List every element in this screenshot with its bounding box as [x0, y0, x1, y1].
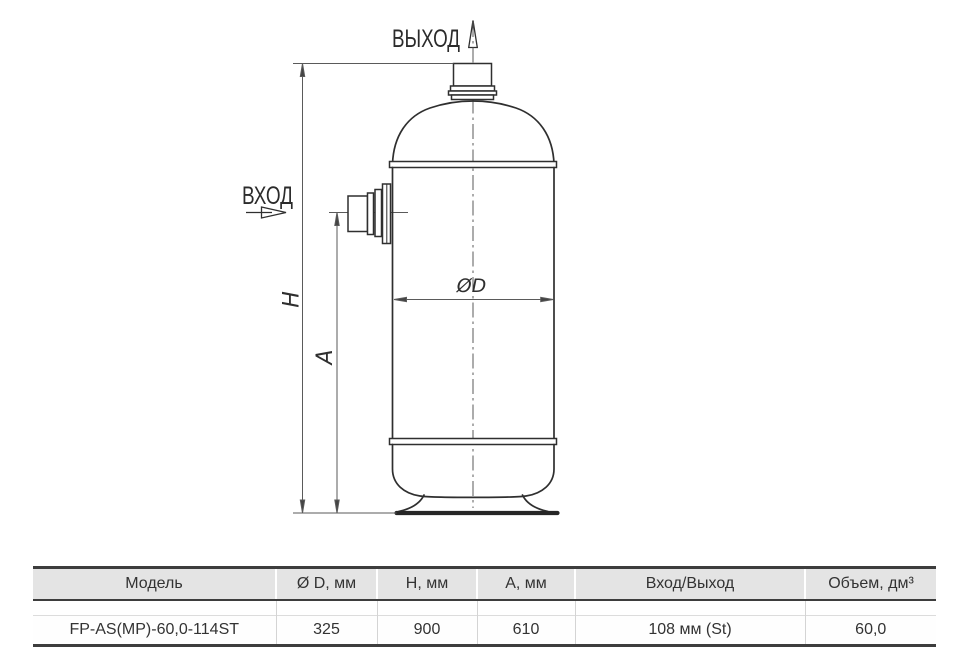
spacer-cell: [805, 600, 936, 616]
spacer-cell: [33, 600, 276, 616]
cell-height: 900: [377, 616, 477, 646]
skirt-right: [523, 495, 548, 512]
spec-data-row: FP-AS(MP)-60,0-114ST 325 900 610 108 мм …: [33, 616, 936, 646]
dim-a-arrow-bottom: [335, 500, 339, 513]
inlet-nozzle: [348, 184, 391, 244]
inlet-pipe: [348, 196, 368, 232]
col-header-height: H, мм: [377, 568, 477, 601]
col-header-diameter: Ø D, мм: [276, 568, 377, 601]
dim-d-label: ØD: [456, 275, 487, 297]
spec-table-container: Модель Ø D, мм H, мм A, мм Вход/Выход Об…: [33, 566, 936, 647]
inlet-label: ВХОД: [242, 182, 293, 210]
top-weld-band: [390, 162, 557, 168]
spacer-cell: [276, 600, 377, 616]
col-header-a: A, мм: [477, 568, 575, 601]
cell-inlet-outlet: 108 мм (St): [575, 616, 805, 646]
spacer-cell: [377, 600, 477, 616]
spacer-cell: [575, 600, 805, 616]
spacer-cell: [477, 600, 575, 616]
inlet-ring-1: [368, 193, 374, 235]
bottom-weld-band: [390, 439, 557, 445]
dim-h-label: H: [280, 291, 305, 308]
outlet-ring-2: [452, 95, 494, 100]
dim-diameter: [394, 297, 553, 301]
col-header-inlet-outlet: Вход/Выход: [575, 568, 805, 601]
cell-volume: 60,0: [805, 616, 936, 646]
technical-drawing: ВЫХОД ВХОД H A ØD: [0, 0, 969, 560]
spec-spacer-row: [33, 600, 936, 616]
dim-a-label: A: [313, 349, 338, 366]
dim-a-arrow-top: [335, 213, 339, 226]
outlet-nozzle: [449, 64, 497, 100]
dim-h-arrow-bottom: [300, 500, 304, 513]
dim-d-arrow-right: [541, 297, 554, 301]
col-header-model: Модель: [33, 568, 276, 601]
inlet-ring-2: [375, 190, 382, 237]
page: ВЫХОД ВХОД H A ØD Модель Ø D, мм H, мм A…: [0, 0, 969, 664]
skirt-left: [399, 495, 424, 512]
dim-height: [293, 64, 454, 514]
col-header-volume: Объем, дм³: [805, 568, 936, 601]
cell-model: FP-AS(MP)-60,0-114ST: [33, 616, 276, 646]
outlet-label: ВЫХОД: [392, 25, 460, 53]
spec-table: Модель Ø D, мм H, мм A, мм Вход/Выход Об…: [33, 566, 936, 647]
dim-h-arrow-top: [300, 64, 304, 77]
cell-diameter: 325: [276, 616, 377, 646]
dim-d-arrow-left: [394, 297, 407, 301]
outlet-pipe: [454, 64, 492, 87]
spec-header-row: Модель Ø D, мм H, мм A, мм Вход/Выход Об…: [33, 568, 936, 601]
cell-a: 610: [477, 616, 575, 646]
